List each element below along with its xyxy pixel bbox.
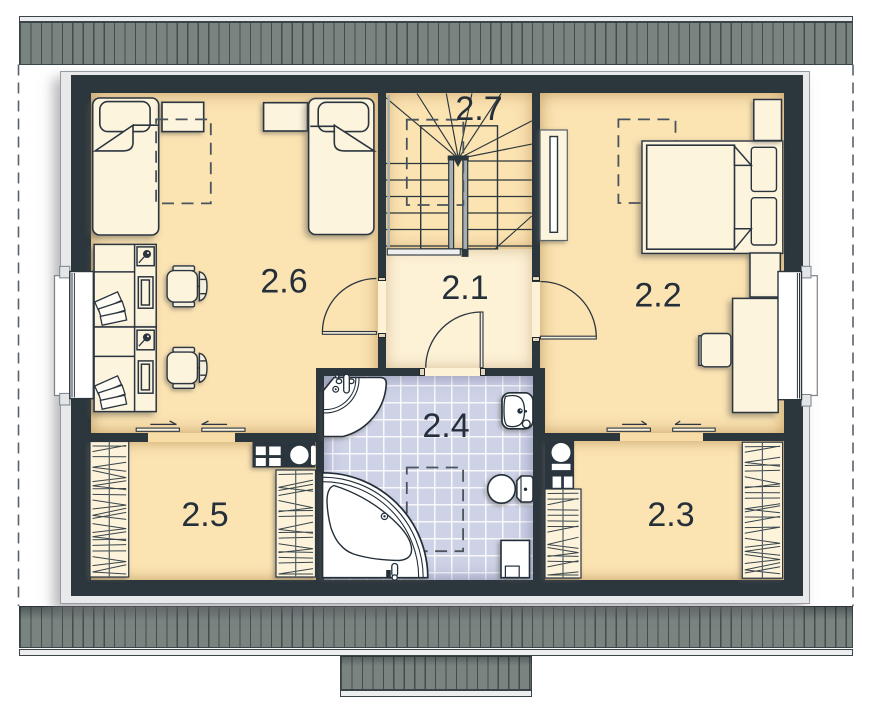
svg-text:2.7: 2.7 <box>455 90 502 128</box>
svg-text:2.1: 2.1 <box>441 269 488 307</box>
svg-text:2.4: 2.4 <box>422 407 469 445</box>
svg-text:2.2: 2.2 <box>634 277 681 315</box>
svg-text:2.5: 2.5 <box>181 496 228 534</box>
svg-text:2.6: 2.6 <box>260 263 307 301</box>
svg-text:2.3: 2.3 <box>647 496 694 534</box>
